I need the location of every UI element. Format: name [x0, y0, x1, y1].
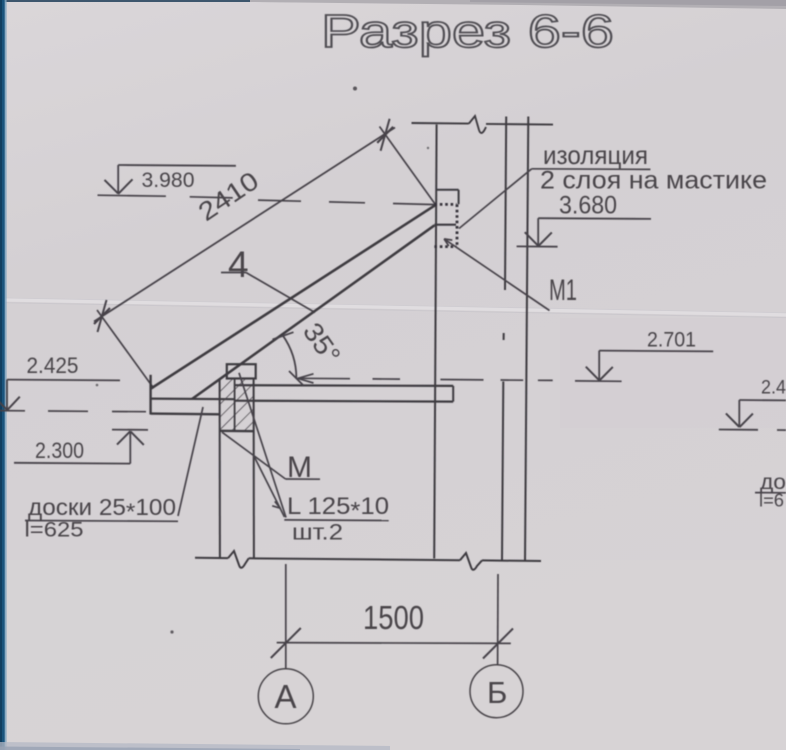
svg-text:Разрез 6-6: Разрез 6-6	[321, 5, 614, 57]
svg-text:3.680: 3.680	[559, 192, 617, 220]
svg-text:изоляция: изоляция	[543, 140, 648, 170]
svg-text:А: А	[275, 678, 297, 715]
svg-text:шт.2: шт.2	[292, 520, 343, 545]
svg-text:1500: 1500	[363, 599, 424, 636]
svg-text:2.300: 2.300	[35, 438, 84, 463]
svg-text:l=625: l=625	[25, 519, 84, 542]
svg-text:2 слоя на мастике: 2 слоя на мастике	[540, 167, 767, 195]
svg-text:2.4: 2.4	[761, 378, 786, 399]
svg-text:М1: М1	[549, 274, 577, 307]
svg-text:2.425: 2.425	[27, 353, 79, 378]
svg-text:4: 4	[228, 244, 249, 285]
svg-text:Б: Б	[487, 675, 507, 710]
svg-text:3.980: 3.980	[142, 168, 195, 192]
svg-text:l=6: l=6	[759, 491, 784, 511]
svg-text:2.701: 2.701	[647, 328, 696, 352]
